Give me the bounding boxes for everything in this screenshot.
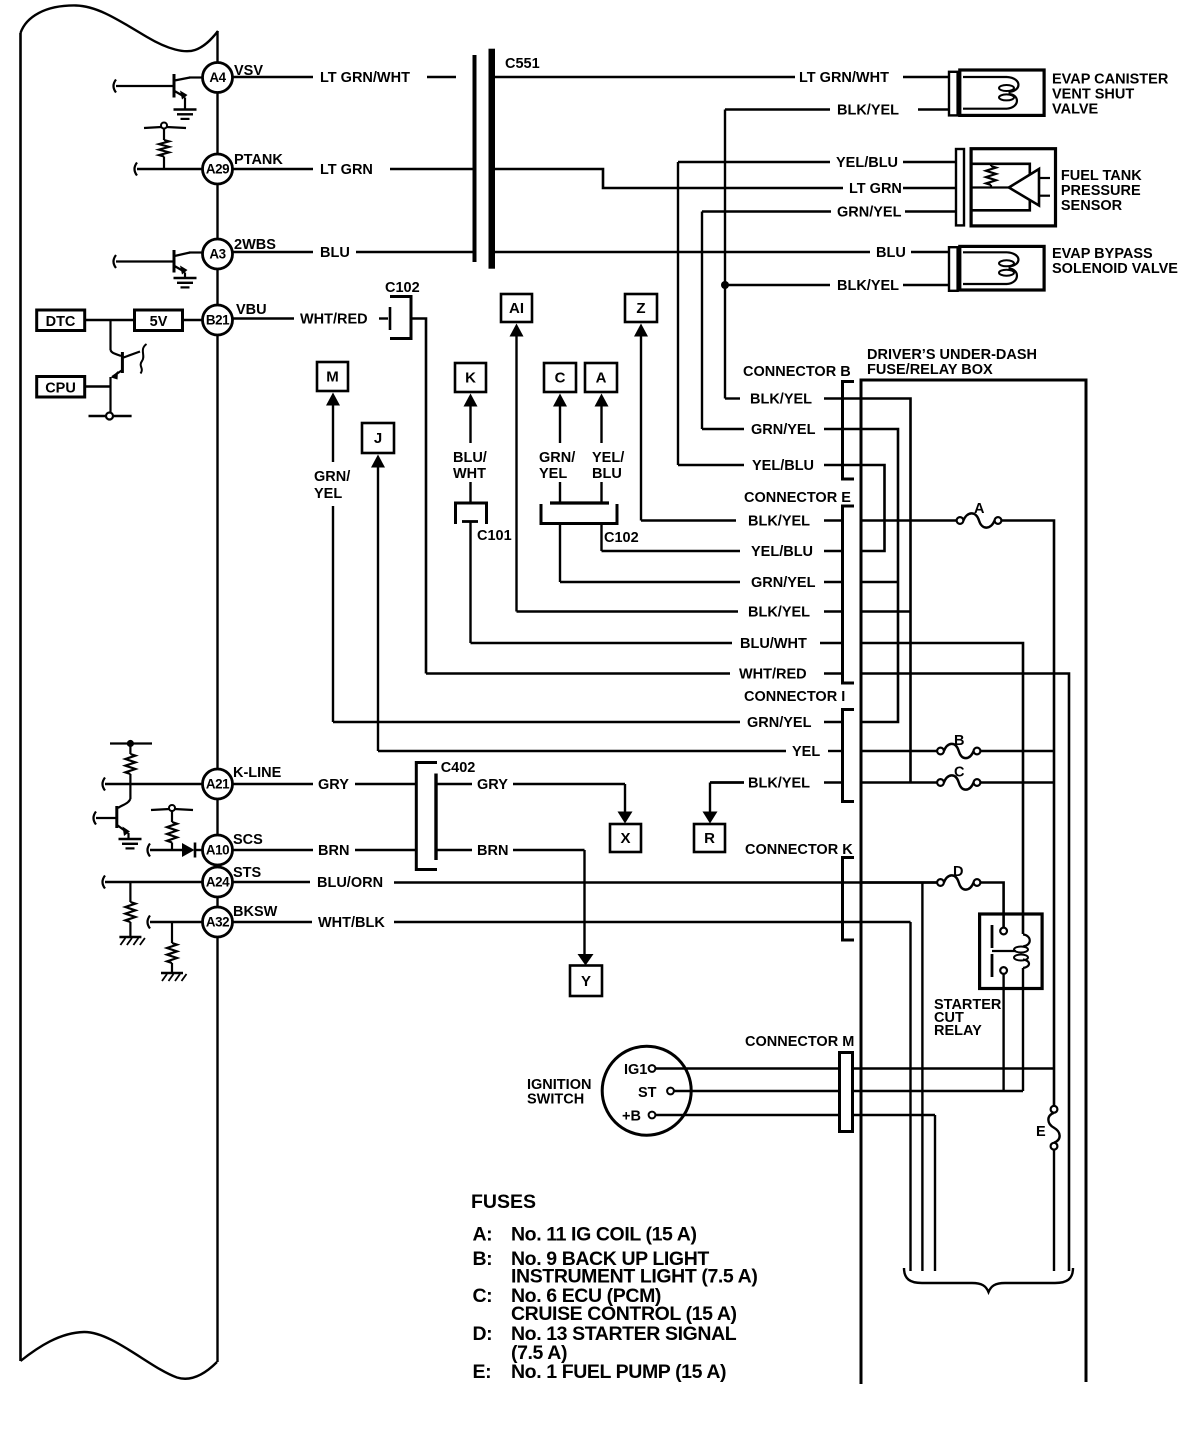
svg-text:A32: A32 <box>206 915 229 930</box>
svg-text:C102: C102 <box>385 280 420 296</box>
svg-text:No. 1 FUEL PUMP (15 A): No. 1 FUEL PUMP (15 A) <box>511 1361 726 1383</box>
svg-text:B:: B: <box>473 1248 493 1270</box>
svg-text:C102: C102 <box>604 530 639 546</box>
svg-text:BLU: BLU <box>592 466 622 482</box>
svg-text:IG1: IG1 <box>624 1062 647 1078</box>
svg-text:EVAP CANISTER: EVAP CANISTER <box>1052 72 1169 88</box>
svg-text:C:: C: <box>473 1285 493 1307</box>
svg-text:YEL/: YEL/ <box>592 450 624 466</box>
svg-text:A10: A10 <box>206 843 229 858</box>
svg-text:YEL/BLU: YEL/BLU <box>836 155 898 171</box>
svg-text:YEL: YEL <box>314 486 342 502</box>
svg-text:GRN/: GRN/ <box>539 450 575 466</box>
svg-text:SOLENOID VALVE: SOLENOID VALVE <box>1052 261 1178 277</box>
svg-text:A24: A24 <box>206 875 230 890</box>
svg-text:PRESSURE: PRESSURE <box>1061 183 1141 199</box>
svg-text:Y: Y <box>581 973 591 990</box>
svg-text:GRN/YEL: GRN/YEL <box>751 575 816 591</box>
svg-text:FUEL TANK: FUEL TANK <box>1061 168 1142 184</box>
svg-text:B: B <box>954 733 964 749</box>
svg-text:C101: C101 <box>477 528 512 544</box>
svg-text:A: A <box>974 501 985 517</box>
svg-text:YEL: YEL <box>792 744 820 760</box>
svg-text:X: X <box>620 830 630 847</box>
svg-text:A3: A3 <box>209 247 225 262</box>
svg-text:BLK/YEL: BLK/YEL <box>748 776 810 792</box>
svg-text:K-LINE: K-LINE <box>233 765 282 781</box>
svg-text:BKSW: BKSW <box>233 904 278 920</box>
svg-text:VBU: VBU <box>236 302 267 318</box>
svg-text:+B: +B <box>622 1109 641 1125</box>
svg-text:BLU: BLU <box>876 245 906 261</box>
svg-text:RELAY: RELAY <box>934 1023 982 1039</box>
svg-text:LT GRN/WHT: LT GRN/WHT <box>320 70 410 86</box>
svg-text:K: K <box>465 370 476 387</box>
svg-text:WHT/BLK: WHT/BLK <box>318 915 385 931</box>
svg-text:E: E <box>1036 1124 1046 1140</box>
svg-text:BLU/WHT: BLU/WHT <box>740 636 807 652</box>
svg-text:C: C <box>954 765 965 781</box>
svg-text:DRIVER’S UNDER-DASH: DRIVER’S UNDER-DASH <box>867 347 1037 363</box>
svg-text:GRY: GRY <box>318 777 349 793</box>
svg-text:BLU/: BLU/ <box>453 450 487 466</box>
svg-text:AI: AI <box>509 300 524 317</box>
svg-text:GRN/YEL: GRN/YEL <box>747 715 812 731</box>
svg-text:LT GRN: LT GRN <box>320 162 373 178</box>
svg-text:BLK/YEL: BLK/YEL <box>837 103 899 119</box>
svg-text:YEL/BLU: YEL/BLU <box>751 544 813 560</box>
svg-text:A4: A4 <box>209 70 226 85</box>
svg-text:BRN: BRN <box>318 843 349 859</box>
svg-text:VENT SHUT: VENT SHUT <box>1052 87 1134 103</box>
svg-text:2WBS: 2WBS <box>234 237 276 253</box>
svg-text:GRN/: GRN/ <box>314 469 350 485</box>
svg-text:GRN/YEL: GRN/YEL <box>837 205 902 221</box>
svg-text:DTC: DTC <box>46 314 76 330</box>
svg-text:CPU: CPU <box>45 381 76 397</box>
svg-text:J: J <box>374 430 382 447</box>
svg-text:WHT/RED: WHT/RED <box>300 312 368 328</box>
svg-text:CONNECTOR I: CONNECTOR I <box>744 689 845 705</box>
svg-text:M: M <box>326 369 339 386</box>
svg-text:B21: B21 <box>206 313 230 328</box>
svg-text:SENSOR: SENSOR <box>1061 198 1123 214</box>
svg-text:A21: A21 <box>206 777 230 792</box>
svg-text:PTANK: PTANK <box>234 152 283 168</box>
svg-text:5V: 5V <box>150 314 168 330</box>
svg-text:BLU: BLU <box>320 245 350 261</box>
svg-text:VALVE: VALVE <box>1052 102 1099 118</box>
svg-text:SCS: SCS <box>233 832 263 848</box>
svg-text:D: D <box>953 864 963 880</box>
svg-text:BLK/YEL: BLK/YEL <box>748 514 810 530</box>
svg-text:YEL/BLU: YEL/BLU <box>752 458 814 474</box>
svg-text:STS: STS <box>233 865 262 881</box>
svg-text:C402: C402 <box>441 760 476 776</box>
svg-text:WHT: WHT <box>453 466 486 482</box>
svg-text:A: A <box>596 370 607 387</box>
svg-text:EVAP BYPASS: EVAP BYPASS <box>1052 246 1153 262</box>
svg-text:SWITCH: SWITCH <box>527 1092 584 1108</box>
svg-text:FUSE/RELAY BOX: FUSE/RELAY BOX <box>867 362 993 378</box>
svg-text:FUSES: FUSES <box>471 1191 536 1213</box>
svg-text:CRUISE CONTROL (15 A): CRUISE CONTROL (15 A) <box>511 1303 737 1325</box>
svg-text:YEL: YEL <box>539 466 567 482</box>
svg-text:BLK/YEL: BLK/YEL <box>837 278 899 294</box>
svg-text:CONNECTOR K: CONNECTOR K <box>745 842 853 858</box>
svg-text:D:: D: <box>473 1323 493 1345</box>
svg-text:LT GRN: LT GRN <box>849 181 902 197</box>
svg-text:BRN: BRN <box>477 843 508 859</box>
svg-text:A:: A: <box>473 1224 493 1246</box>
svg-text:No. 11 IG COIL (15 A): No. 11 IG COIL (15 A) <box>511 1224 697 1246</box>
svg-text:ST: ST <box>638 1085 657 1101</box>
svg-text:CONNECTOR E: CONNECTOR E <box>744 490 851 506</box>
svg-text:C: C <box>555 370 566 387</box>
svg-text:BLU/ORN: BLU/ORN <box>317 875 383 891</box>
svg-text:BLK/YEL: BLK/YEL <box>748 605 810 621</box>
svg-text:R: R <box>704 830 715 847</box>
svg-text:E:: E: <box>473 1361 492 1383</box>
svg-text:GRY: GRY <box>477 777 508 793</box>
svg-text:WHT/RED: WHT/RED <box>739 667 807 683</box>
svg-text:GRN/YEL: GRN/YEL <box>751 422 816 438</box>
svg-text:BLK/YEL: BLK/YEL <box>750 392 812 408</box>
svg-text:LT GRN/WHT: LT GRN/WHT <box>799 70 889 86</box>
svg-text:CONNECTOR M: CONNECTOR M <box>745 1034 854 1050</box>
svg-text:CONNECTOR B: CONNECTOR B <box>743 364 851 380</box>
svg-text:A29: A29 <box>206 162 229 177</box>
svg-text:Z: Z <box>636 300 645 317</box>
svg-text:C551: C551 <box>505 56 540 72</box>
